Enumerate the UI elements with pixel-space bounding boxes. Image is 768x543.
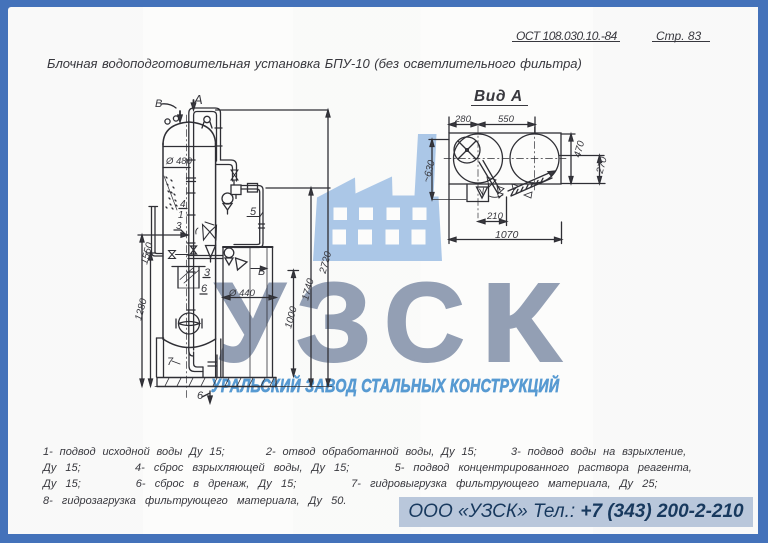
- svg-text:270: 270: [595, 155, 610, 175]
- svg-text:1000: 1000: [283, 305, 299, 330]
- svg-text:2720: 2720: [318, 250, 335, 276]
- svg-text:1740: 1740: [300, 277, 316, 302]
- svg-text:~630: ~630: [421, 159, 438, 184]
- svg-text:1280: 1280: [133, 297, 149, 322]
